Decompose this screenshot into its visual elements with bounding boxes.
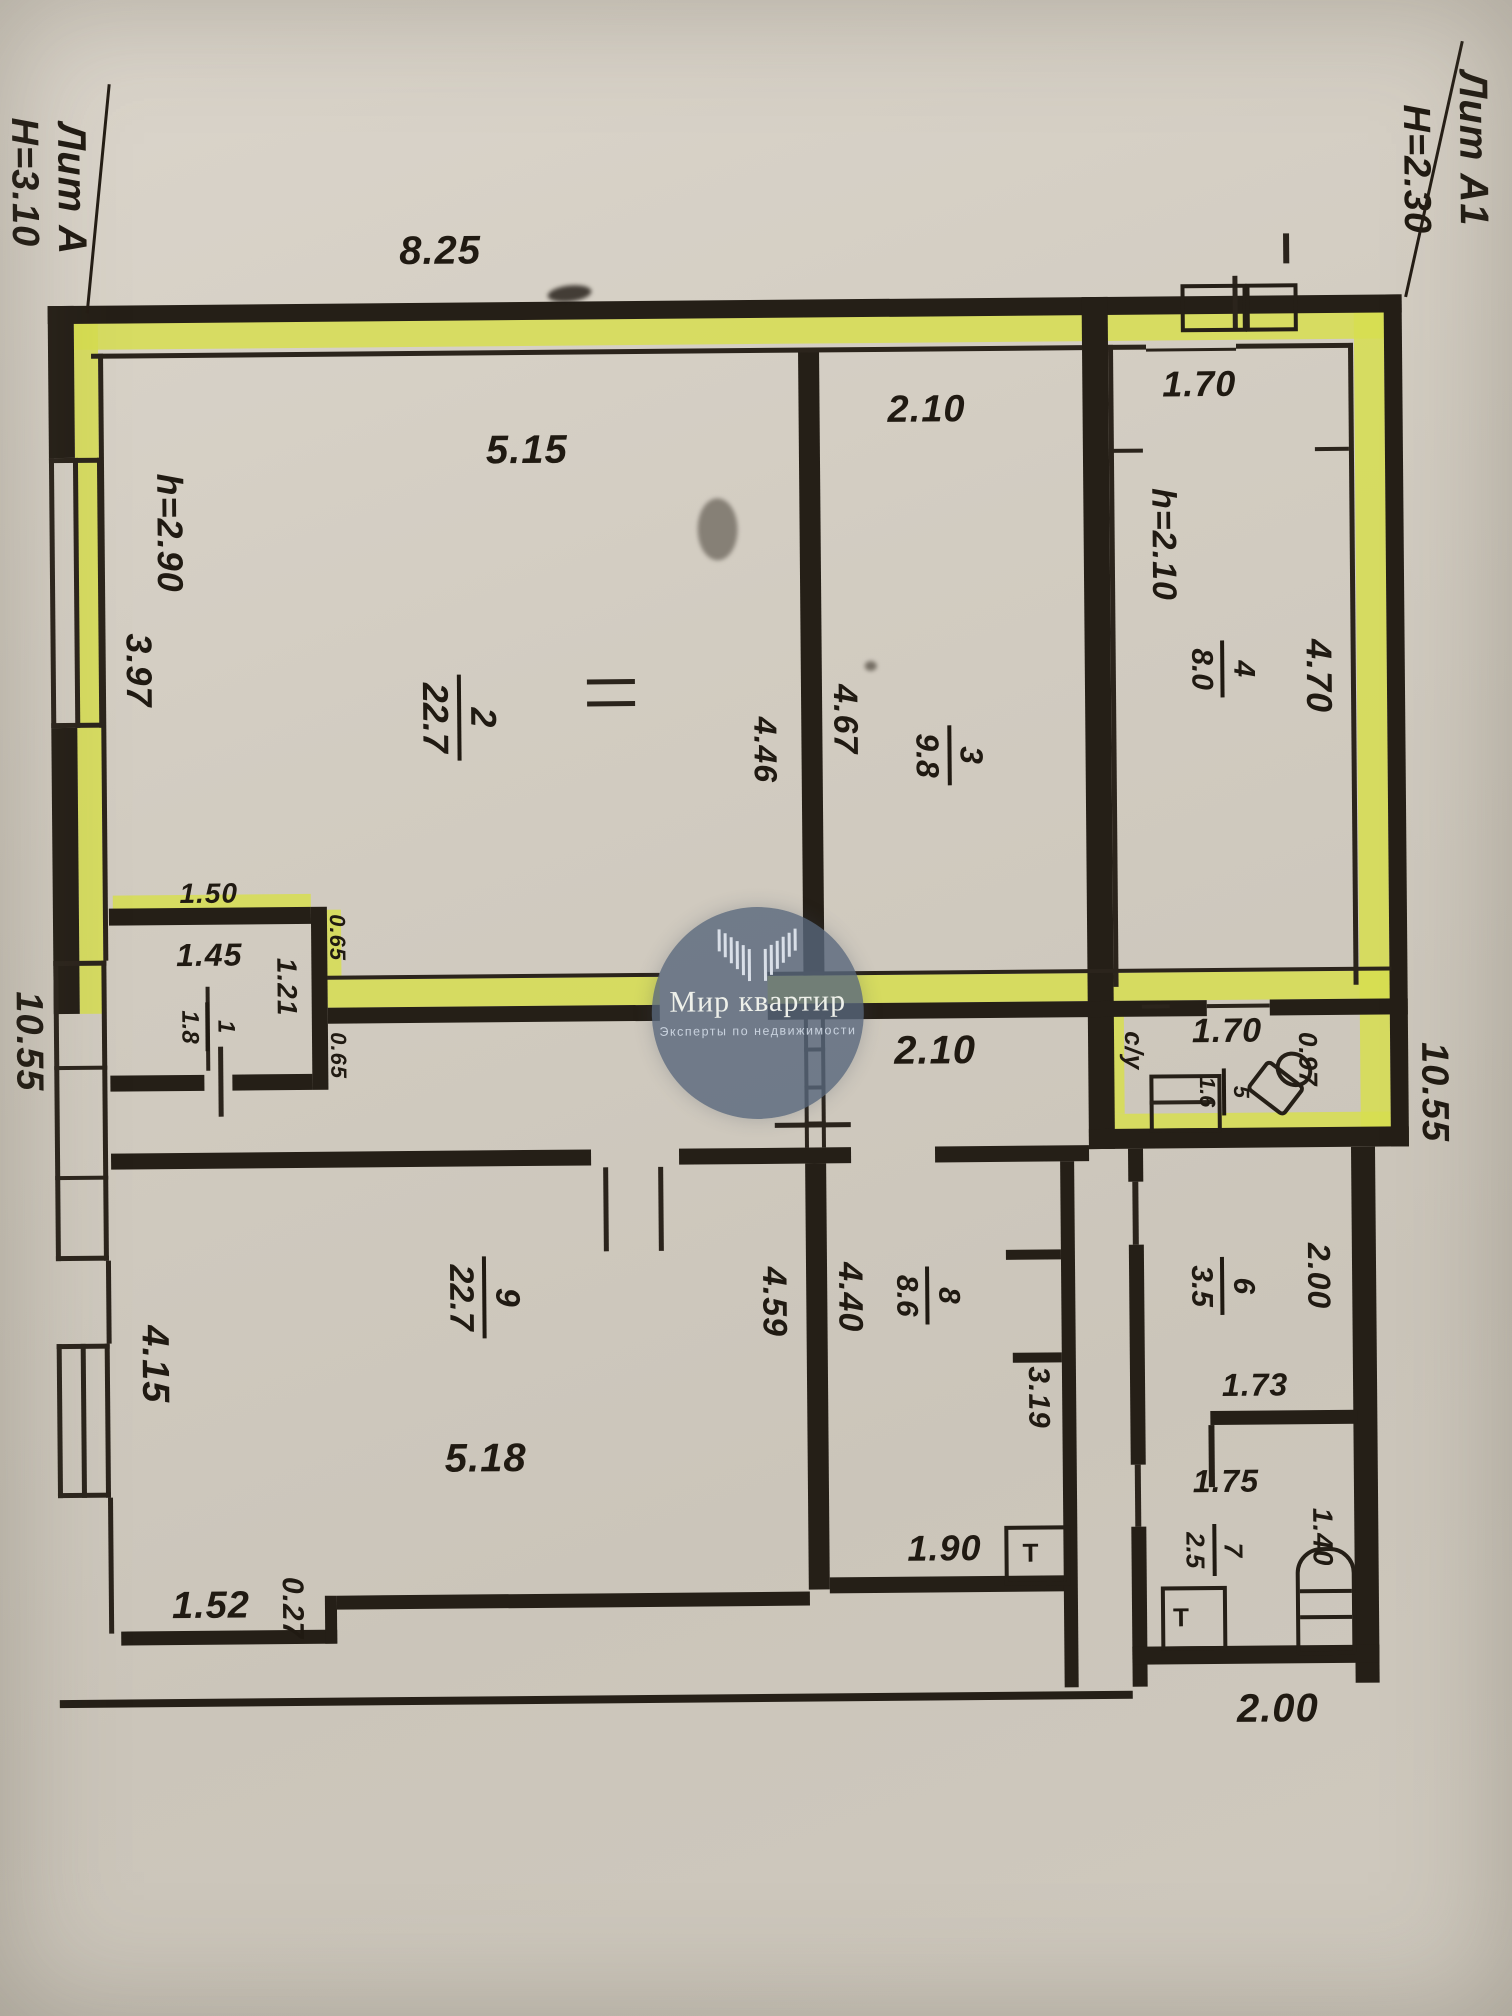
- boiler-icon: Т: [1004, 1525, 1071, 1586]
- wall-segment: [679, 1147, 851, 1165]
- room-area: 1.6: [1196, 1069, 1226, 1116]
- dimension-tick: [587, 701, 635, 706]
- window: [51, 723, 104, 728]
- dimension-label: 0.65: [321, 896, 354, 980]
- watermark-brand: Мир квартир: [669, 984, 846, 1020]
- window: [49, 458, 56, 728]
- window: [55, 1176, 108, 1180]
- window: [101, 961, 109, 1261]
- dimension-label: 2.00: [1216, 1683, 1340, 1734]
- dimension-label: 1.50: [167, 876, 251, 911]
- ink-smudge: [697, 498, 738, 560]
- room-label: 5 1.6: [1192, 1064, 1256, 1120]
- dimension-tick: [1315, 447, 1349, 451]
- room-label: 8 8.6: [888, 1245, 967, 1346]
- wall-segment: [935, 1145, 1089, 1162]
- room-number: 7: [1220, 1543, 1246, 1558]
- window: [105, 1344, 111, 1498]
- dimension-label: 1.21: [267, 932, 306, 1042]
- room-label: 1 1.8: [172, 989, 243, 1065]
- window: [57, 1344, 63, 1498]
- dimension-tick: [658, 1167, 664, 1251]
- dimension-label: 1.75: [1178, 1460, 1274, 1503]
- ceiling-height-label: h=2.10: [1141, 444, 1187, 644]
- dimension-label: 1.52: [155, 1582, 267, 1629]
- boiler-label: Т: [1022, 1540, 1039, 1566]
- room-area: 22.7: [444, 1256, 487, 1339]
- wall-segment: [1210, 1410, 1357, 1425]
- room-area: 9.8: [911, 725, 952, 786]
- room-label: 3 9.8: [914, 700, 985, 811]
- dimension-tick: [1283, 233, 1289, 263]
- wall-segment: [111, 1149, 591, 1169]
- room-area: 1.8: [177, 1002, 209, 1052]
- vent-channel-icon: [1180, 284, 1246, 333]
- room-label: 4 8.0: [1182, 621, 1263, 717]
- dimension-label: 1.70: [1178, 1009, 1276, 1052]
- window: [81, 1344, 87, 1498]
- room-label: 9 22.7: [438, 1237, 531, 1358]
- inner-wall-line: [1236, 343, 1348, 349]
- dimension-label: 4.46: [744, 690, 787, 810]
- height-label-left: Н=3.10: [2, 72, 48, 292]
- dimension-label: 10.55: [1410, 992, 1460, 1192]
- highlight-wall: [327, 977, 659, 1008]
- dimension-label: 1.45: [153, 934, 265, 975]
- dimension-label: 0.65: [322, 1014, 355, 1098]
- room-number: 4: [1228, 660, 1258, 677]
- wall-segment: [110, 1075, 204, 1092]
- room-number: 1: [213, 1020, 237, 1034]
- boiler-label: Т: [1173, 1604, 1190, 1630]
- dimension-tick: [603, 1167, 609, 1251]
- inner-wall-line: [108, 1498, 114, 1634]
- dimension-label: 5.15: [467, 425, 587, 474]
- room-number: 9: [490, 1288, 524, 1307]
- dimension-label: 10.55: [5, 941, 53, 1141]
- room-number: 8: [933, 1287, 963, 1304]
- dimension-label: 1.40: [1302, 1477, 1343, 1597]
- wall-segment: [1089, 1126, 1409, 1149]
- room-label: 6 3.5: [1184, 1236, 1261, 1337]
- room-label: 2 22.7: [406, 655, 513, 780]
- dimension-label: 4.67: [823, 649, 868, 789]
- window: [56, 1256, 109, 1261]
- dimension-label: 4.59: [752, 1232, 797, 1372]
- boiler-icon: Т: [1161, 1586, 1228, 1651]
- window: [54, 1066, 107, 1070]
- room-number: 5: [1230, 1086, 1252, 1098]
- door-sill: [1142, 1004, 1170, 1008]
- wall-segment: [1129, 1245, 1146, 1465]
- window: [49, 458, 102, 463]
- door-sill: [1135, 1465, 1142, 1527]
- watermark-tagline: Эксперты по недвижимости: [659, 1023, 856, 1039]
- room-area: 3.5: [1186, 1257, 1225, 1315]
- room-number: 6: [1228, 1277, 1258, 1294]
- dimension-label: 0.97: [1290, 1009, 1327, 1109]
- dimension-label: 5.18: [425, 1434, 545, 1483]
- room-area: 2.5: [1182, 1524, 1216, 1576]
- dimension-label: 2.00: [1298, 1211, 1341, 1341]
- wall-segment: [798, 351, 824, 975]
- room-area: 8.0: [1186, 640, 1225, 698]
- dimension-tick: [587, 679, 635, 684]
- window: [58, 1493, 111, 1498]
- ceiling-height-label: h=2.90: [147, 433, 193, 633]
- wall-segment: [48, 306, 75, 458]
- room-label: 7 2.5: [1179, 1505, 1250, 1596]
- inner-wall-line: [1108, 345, 1146, 350]
- wall-segment: [337, 1592, 810, 1610]
- wall-segment: [1128, 1149, 1143, 1182]
- dimension-label: 0.27: [270, 1548, 313, 1668]
- wall-segment: [60, 1691, 1133, 1708]
- wall-segment: [1006, 1249, 1061, 1259]
- door-sill: [1207, 1004, 1270, 1009]
- dimension-label: 8.25: [380, 227, 500, 274]
- dimension-label: 3.19: [1017, 1337, 1060, 1457]
- room-number: 2: [465, 707, 501, 727]
- room-number: 3: [955, 746, 987, 764]
- inner-wall-line: [106, 1261, 112, 1344]
- dimension-label: 2.10: [880, 1026, 990, 1075]
- room-type-label: с/у: [1116, 1019, 1153, 1083]
- dimension-label: 1.70: [1151, 362, 1247, 407]
- dimension-label: 4.15: [130, 1289, 179, 1439]
- floor-plan: Т Т Лит А Н=3.10 Лит А1 Н=2.30 8.25 10.5…: [0, 0, 1512, 2016]
- dimension-label: 1.90: [892, 1526, 996, 1571]
- scanned-floor-plan-photo: Т Т Лит А Н=3.10 Лит А1 Н=2.30 8.25 10.5…: [0, 0, 1512, 2016]
- room-area: 8.6: [891, 1267, 930, 1325]
- door-sill: [1132, 1182, 1139, 1245]
- wall-segment: [805, 1163, 830, 1589]
- wall-segment: [232, 1074, 312, 1091]
- dimension-label: 4.70: [1296, 591, 1341, 761]
- watermark-logo-icon: [697, 922, 818, 983]
- vent-channel-icon: [1245, 283, 1297, 331]
- dimension-tick: [1109, 449, 1143, 453]
- dimension-label: 1.73: [1205, 1363, 1305, 1406]
- watermark: Мир квартир Эксперты по недвижимости: [651, 906, 865, 1120]
- wall-segment: [1060, 1161, 1079, 1687]
- dimension-tick: [775, 1122, 851, 1128]
- wall-segment: [325, 1596, 337, 1644]
- dimension-label: 4.40: [828, 1227, 873, 1367]
- room-area: 22.7: [417, 675, 462, 761]
- window: [57, 1344, 110, 1349]
- liter-label-left: Лит А: [48, 84, 96, 294]
- dimension-label: 3.97: [116, 605, 161, 735]
- dimension-label: 2.10: [876, 386, 976, 433]
- door-sill: [1146, 348, 1236, 352]
- window: [53, 961, 106, 966]
- wall-segment: [328, 1005, 660, 1024]
